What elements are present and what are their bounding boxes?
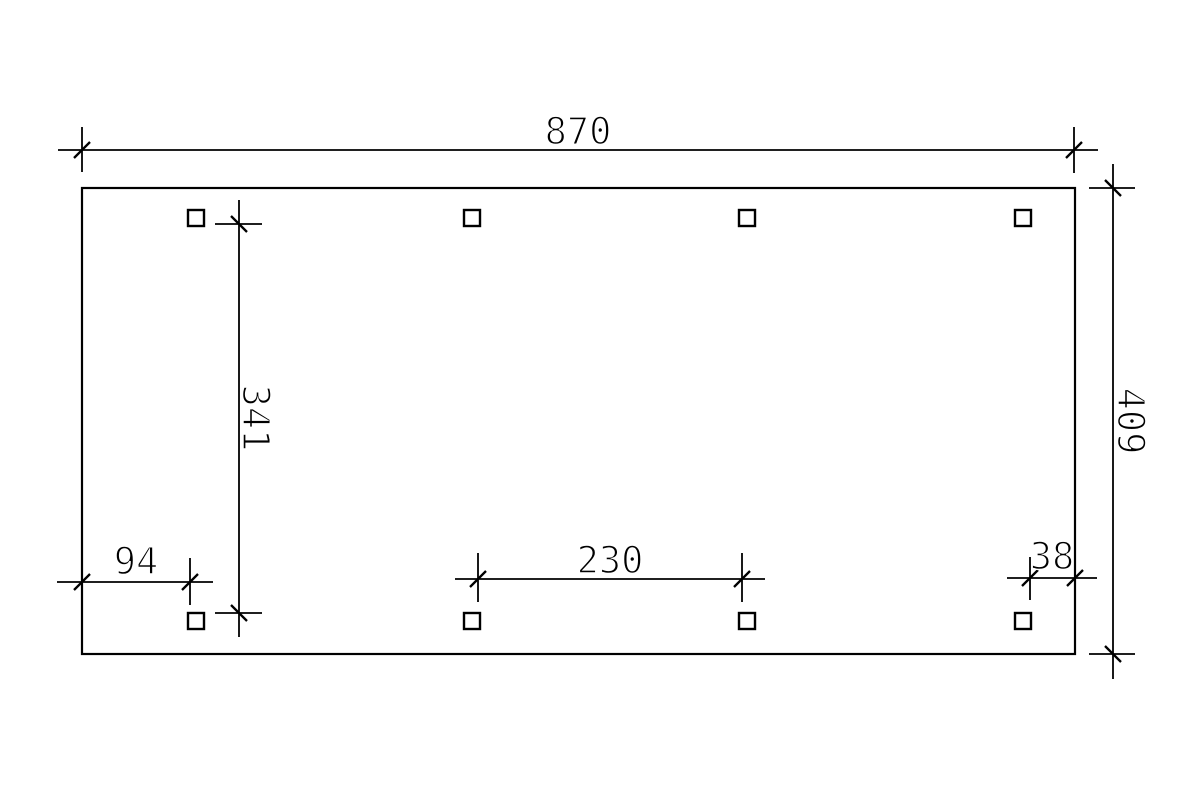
post-square (739, 613, 755, 629)
dim-offset-right: 38 (1007, 535, 1097, 600)
dim-offset-left: 94 (57, 540, 213, 605)
plan-drawing: 870 409 341 94 (0, 0, 1200, 800)
dim-span-center: 230 (455, 539, 765, 602)
post-square (739, 210, 755, 226)
dim-label-height-total: 409 (1109, 388, 1152, 455)
post-square (464, 613, 480, 629)
post-square (188, 210, 204, 226)
post-square (1015, 210, 1031, 226)
post-square (188, 613, 204, 629)
dim-label-offset-left: 94 (114, 540, 159, 583)
dim-label-span-center: 230 (577, 539, 644, 582)
dim-label-height-inner: 341 (234, 385, 277, 452)
dim-label-width-total: 870 (545, 110, 612, 153)
dim-label-offset-right: 38 (1030, 535, 1075, 578)
dim-height-total: 409 (1089, 164, 1152, 679)
dim-width-total: 870 (58, 110, 1098, 173)
plan-outline-rect (82, 188, 1075, 654)
post-square (464, 210, 480, 226)
dim-height-inner: 341 (215, 200, 277, 637)
drawing-canvas: 870 409 341 94 (0, 0, 1200, 800)
post-square (1015, 613, 1031, 629)
